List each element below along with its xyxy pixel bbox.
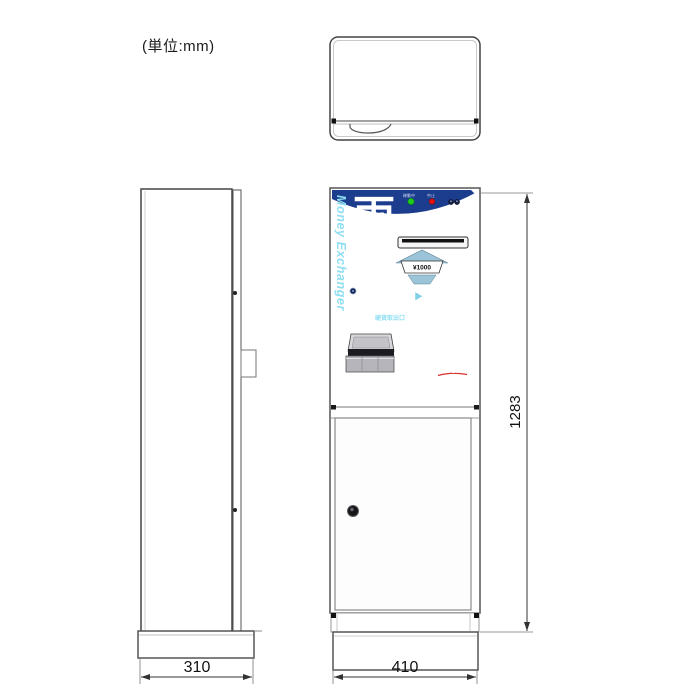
top-view — [330, 37, 480, 140]
exchange-to: ¥500 × 2枚 — [425, 292, 468, 301]
red-lamp-label: 中止 — [427, 193, 435, 199]
side-view — [138, 189, 262, 658]
coin-tray-illustration — [346, 334, 394, 372]
exchange-arrow-icon: ▶ — [414, 292, 422, 301]
top-view-left-tick — [332, 119, 337, 124]
red-lamp — [429, 199, 435, 205]
exchange-from: ¥1000 — [388, 292, 412, 301]
top-view-right-tick — [474, 119, 479, 124]
side-screw-upper — [233, 291, 237, 295]
side-screw-lower — [233, 508, 237, 512]
green-lamp-label: 稼動中 — [403, 193, 415, 199]
brand-logo: OCF — [438, 366, 468, 375]
technical-drawing: ¥1000 — [0, 0, 700, 700]
dim-side-width-label: 310 — [184, 659, 211, 676]
side-coin-tray-bump — [241, 350, 256, 377]
green-lamp — [408, 198, 414, 204]
unit-note: (単位:mm) — [142, 35, 215, 56]
bill-slot — [398, 237, 468, 248]
dim-height-label: 1283 — [507, 395, 524, 428]
side-front-strip — [233, 190, 241, 644]
exchange-rate-line: ¥1000 ▶ ¥500 × 2枚 — [380, 291, 476, 302]
panel-title: 両替 — [351, 196, 397, 276]
bill-label: ¥1000 — [413, 265, 431, 272]
dim-front-width-label: 410 — [392, 659, 419, 676]
panel-screw — [350, 288, 356, 294]
bottom-band — [331, 613, 479, 632]
coin-outlet-note: 硬貨の取り忘れにご注意ください — [334, 321, 446, 329]
dimension-1283: 1283 — [480, 193, 533, 632]
dimension-310: 310 — [140, 659, 253, 684]
door-keyhole — [348, 506, 359, 517]
